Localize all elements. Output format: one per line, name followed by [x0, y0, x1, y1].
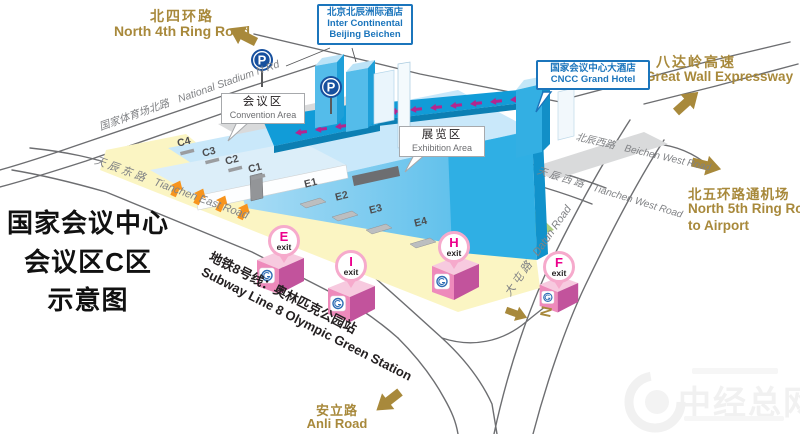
callout-cncc-grand-hotel: 国家会议中心大酒店 CNCC Grand Hotel [536, 60, 650, 90]
exit-pointer-icon [279, 255, 289, 263]
subway-exit-f-marker: F exit [543, 251, 575, 289]
exit-badge: E exit [268, 225, 300, 257]
exit-pointer-icon [346, 280, 356, 288]
map-title-line2: 会议区C区 [0, 242, 176, 279]
cncc-area-map: P P 国家会议中心 会议区C区 示意图 北四环路 North 4th Ring… [0, 0, 800, 434]
map-title-line3: 示意图 [0, 280, 176, 317]
north-5th-ring-label-en2: to Airport [688, 218, 749, 233]
exit-badge: I exit [335, 250, 367, 282]
exit-word: exit [546, 269, 572, 278]
exit-pointer-icon [554, 281, 564, 289]
great-wall-label-en: Great Wall Expressway [645, 69, 793, 84]
watermark-subtext-bar [684, 416, 784, 421]
exit-badge: F exit [543, 251, 575, 283]
callout-exhibition-area: 展览区 Exhibition Area [399, 126, 485, 157]
callout-intercontinental: 北京北辰洲际酒店 Inter Continental Beijing Beich… [317, 4, 413, 45]
exit-word: exit [441, 249, 467, 258]
north-5th-ring-label-en1: North 5th Ring Road [688, 201, 800, 216]
watermark: 中经总网 [600, 360, 800, 434]
subway-exit-i-marker: I exit [335, 250, 367, 288]
exit-badge: H exit [438, 231, 470, 263]
hotel-name-en: CNCC Grand Hotel [541, 75, 645, 86]
subway-exit-e-marker: E exit [268, 225, 300, 263]
subway-exit-h-marker: H exit [438, 231, 470, 269]
anli-road-label-en: Anli Road [292, 416, 382, 431]
exit-word: exit [338, 268, 364, 277]
area-name-cn: 会议区 [224, 96, 302, 110]
area-name-cn: 展览区 [402, 129, 482, 143]
exit-word: exit [271, 243, 297, 252]
hotel-name-en2: Beijing Beichen [322, 30, 408, 41]
area-name-en: Convention Area [224, 110, 302, 121]
parking-label: P [327, 80, 336, 95]
exit-pointer-icon [449, 261, 459, 269]
north-4th-ring-label-en: North 4th Ring Road [97, 23, 267, 39]
north-5th-ring-label-cn: 北五环路通机场 [688, 183, 790, 203]
watermark-tagline-bar [692, 368, 778, 374]
map-title-line1: 国家会议中心 [0, 203, 176, 240]
anli-road-arrow-icon [370, 384, 406, 418]
area-name-en: Exhibition Area [402, 143, 482, 154]
callout-convention-area: 会议区 Convention Area [221, 93, 305, 124]
